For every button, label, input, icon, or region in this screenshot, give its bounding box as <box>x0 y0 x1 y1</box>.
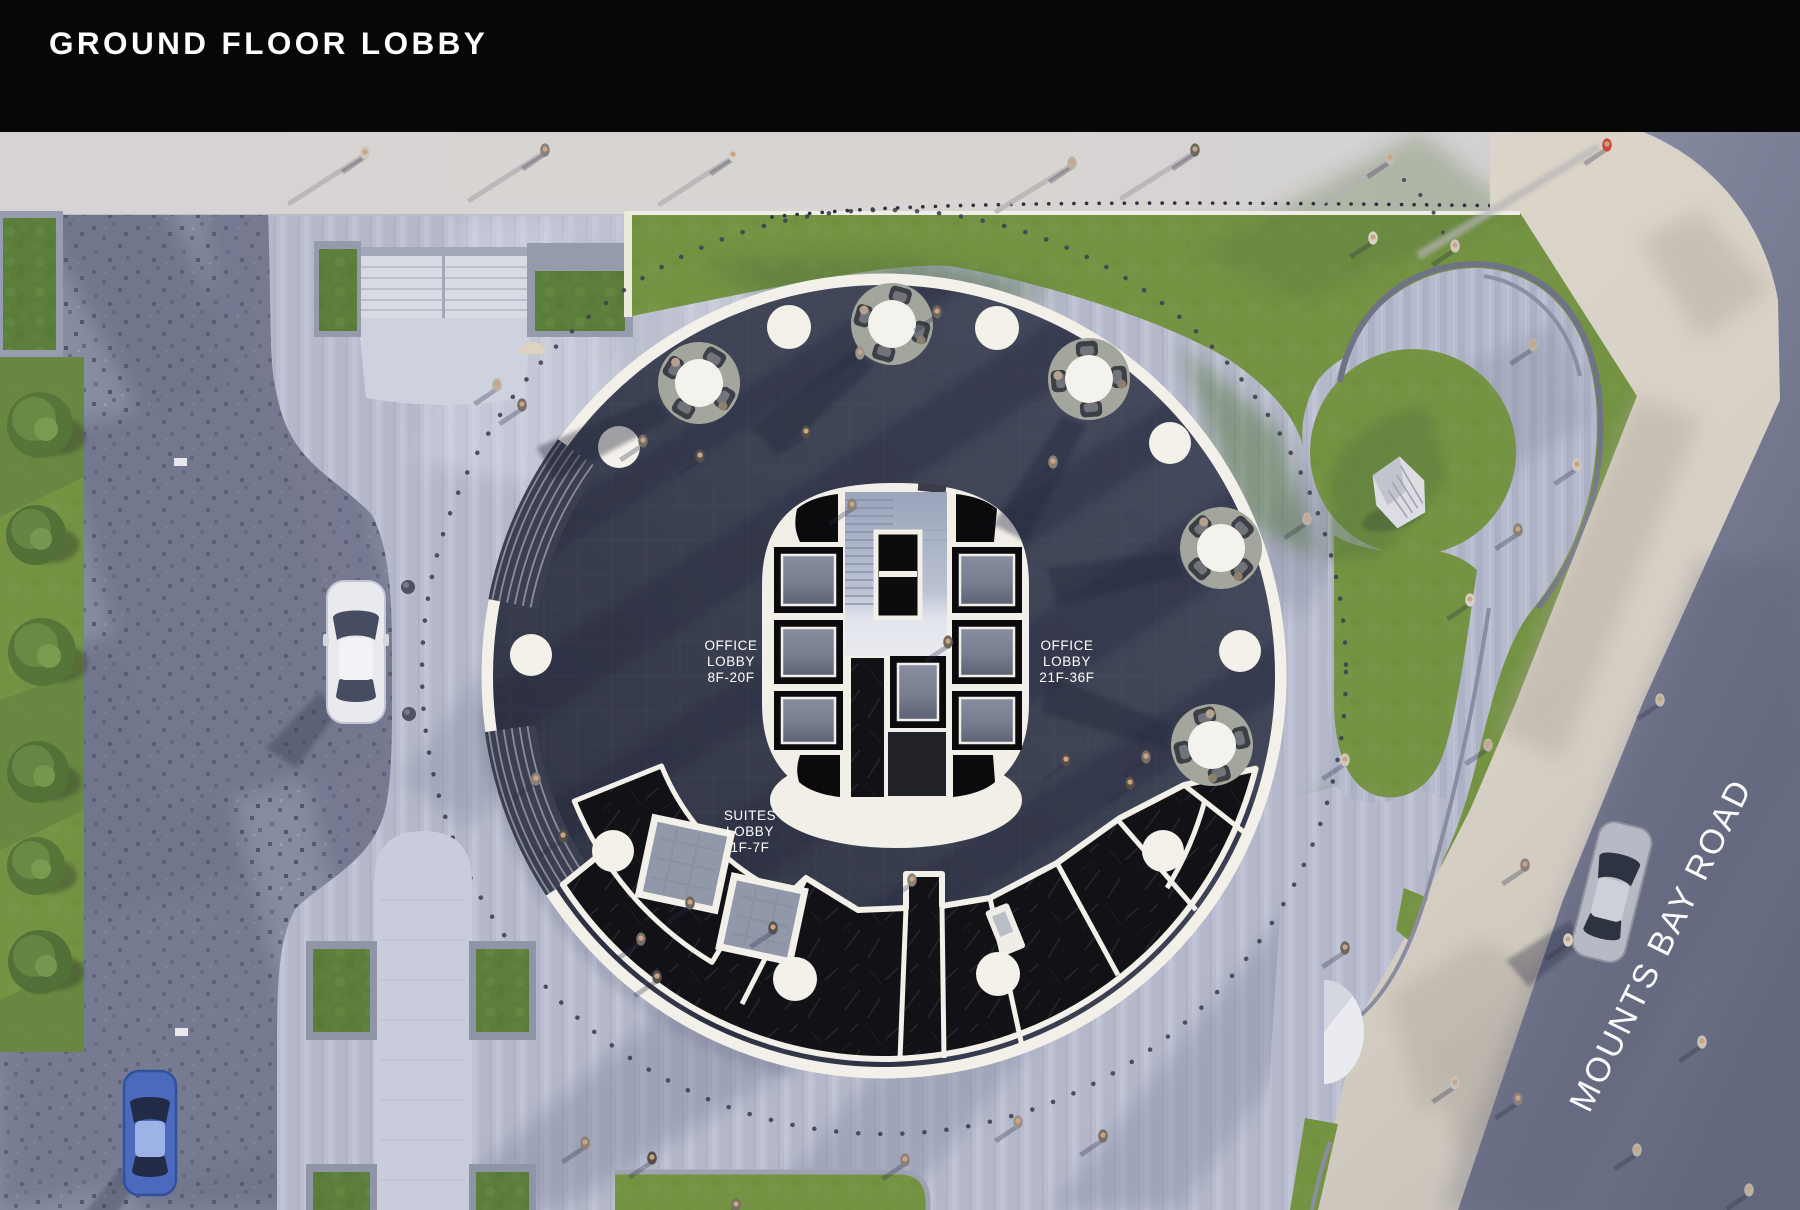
svg-text:21F-36F: 21F-36F <box>1039 670 1094 685</box>
svg-text:OFFICE: OFFICE <box>704 638 757 653</box>
svg-text:LOBBY: LOBBY <box>1043 654 1091 669</box>
svg-text:8F-20F: 8F-20F <box>707 670 754 685</box>
svg-text:OFFICE: OFFICE <box>1040 638 1093 653</box>
svg-text:1F-7F: 1F-7F <box>730 840 769 855</box>
svg-text:LOBBY: LOBBY <box>726 824 774 839</box>
svg-text:SUITES: SUITES <box>724 808 776 823</box>
svg-text:LOBBY: LOBBY <box>707 654 755 669</box>
svg-text:GROUND FLOOR LOBBY: GROUND FLOOR LOBBY <box>49 25 488 61</box>
